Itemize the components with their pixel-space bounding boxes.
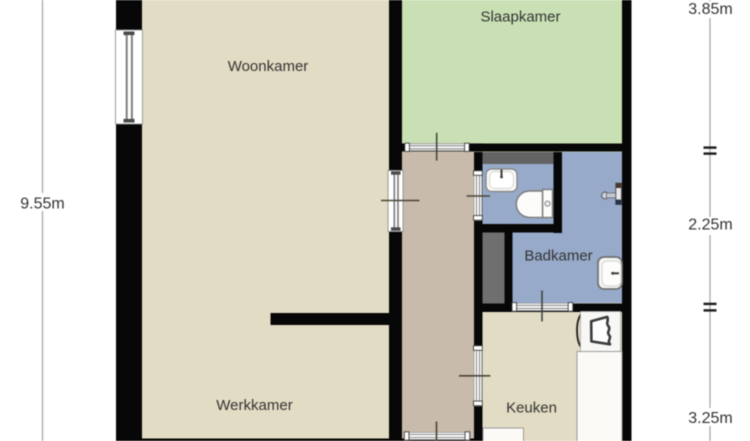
svg-text:3.85m: 3.85m bbox=[688, 1, 732, 18]
svg-text:2.25m: 2.25m bbox=[688, 217, 732, 234]
svg-text:Woonkamer: Woonkamer bbox=[228, 58, 309, 75]
svg-text:3.25m: 3.25m bbox=[688, 410, 732, 427]
svg-text:Badkamer: Badkamer bbox=[524, 248, 592, 265]
svg-text:Werkkamer: Werkkamer bbox=[216, 397, 292, 414]
svg-text:Keuken: Keuken bbox=[506, 400, 557, 417]
svg-text:Slaapkamer: Slaapkamer bbox=[480, 9, 560, 26]
svg-text:9.55m: 9.55m bbox=[20, 196, 64, 213]
